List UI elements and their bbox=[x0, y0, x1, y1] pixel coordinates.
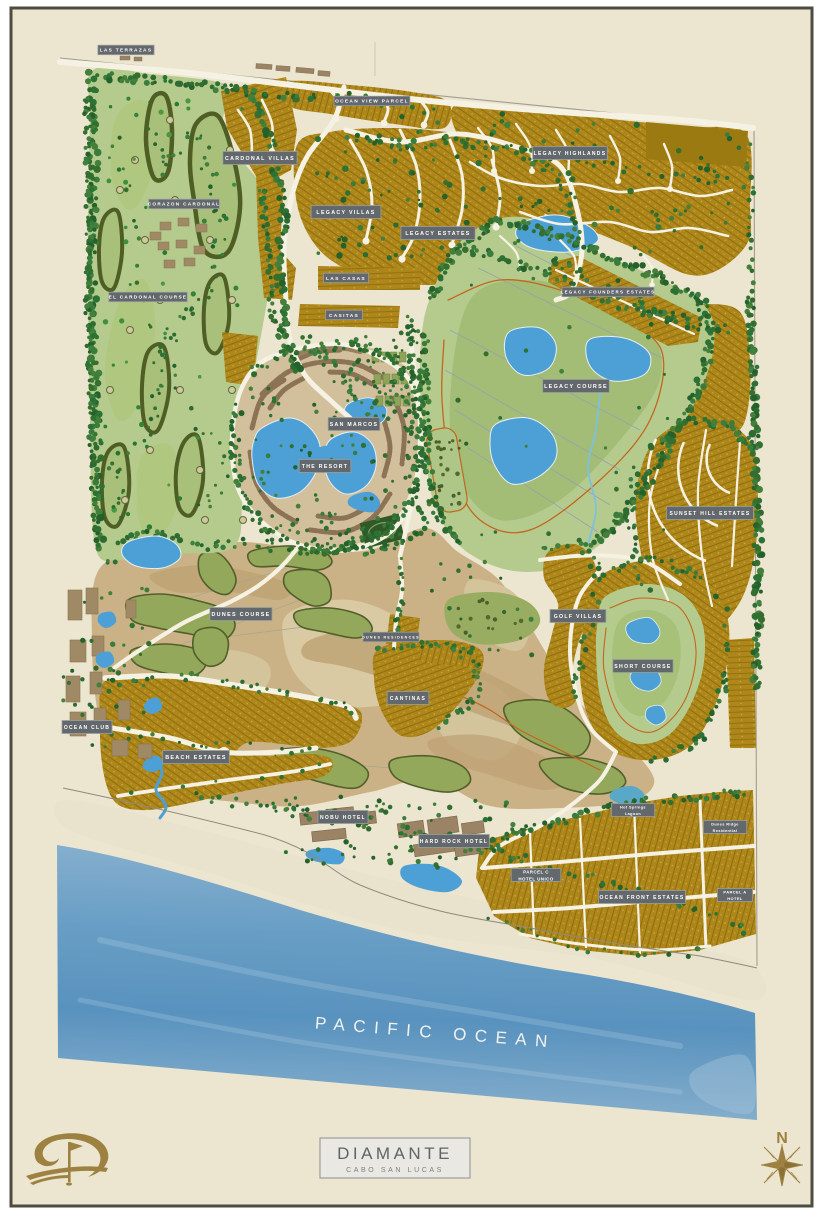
svg-text:LEGACY FOUNDERS ESTATES: LEGACY FOUNDERS ESTATES bbox=[561, 290, 656, 295]
svg-text:CANTINAS: CANTINAS bbox=[390, 696, 426, 702]
svg-text:DUNES RESIDENCES: DUNES RESIDENCES bbox=[362, 635, 420, 639]
svg-text:Dunes Ridge: Dunes Ridge bbox=[711, 823, 739, 827]
svg-text:SHORT COURSE: SHORT COURSE bbox=[614, 664, 671, 670]
svg-text:DUNES COURSE: DUNES COURSE bbox=[211, 612, 270, 618]
svg-text:OCEAN VIEW PARCEL: OCEAN VIEW PARCEL bbox=[335, 99, 409, 105]
svg-text:HOTEL: HOTEL bbox=[727, 896, 743, 901]
svg-text:PARCEL A: PARCEL A bbox=[723, 890, 746, 895]
svg-text:NOBU HOTEL: NOBU HOTEL bbox=[320, 815, 366, 821]
svg-text:SUNSET HILL ESTATES: SUNSET HILL ESTATES bbox=[669, 511, 750, 517]
svg-text:Hot Springs: Hot Springs bbox=[620, 806, 646, 810]
svg-text:PARCEL C: PARCEL C bbox=[523, 870, 549, 875]
svg-text:LEGACY VILLAS: LEGACY VILLAS bbox=[316, 210, 375, 216]
svg-text:SAN MARCOS: SAN MARCOS bbox=[330, 422, 378, 428]
svg-text:LEGACY HIGHLANDS: LEGACY HIGHLANDS bbox=[534, 151, 607, 157]
svg-text:CARDONAL VILLAS: CARDONAL VILLAS bbox=[225, 156, 295, 162]
svg-text:Residential: Residential bbox=[713, 829, 738, 833]
svg-text:EL CARDONAL COURSE: EL CARDONAL COURSE bbox=[109, 295, 188, 300]
svg-text:HARD ROCK HOTEL: HARD ROCK HOTEL bbox=[420, 839, 488, 845]
svg-text:Lagoon: Lagoon bbox=[625, 812, 641, 816]
svg-text:LAS TERRAZAS: LAS TERRAZAS bbox=[100, 48, 153, 54]
svg-text:CABO SAN LUCAS: CABO SAN LUCAS bbox=[346, 1167, 444, 1174]
svg-text:DIAMANTE: DIAMANTE bbox=[337, 1144, 453, 1163]
svg-text:OCEAN FRONT ESTATES: OCEAN FRONT ESTATES bbox=[599, 895, 684, 901]
svg-text:LEGACY ESTATES: LEGACY ESTATES bbox=[405, 231, 470, 237]
svg-text:HOTEL UNICO: HOTEL UNICO bbox=[518, 877, 553, 882]
svg-text:LEGACY COURSE: LEGACY COURSE bbox=[544, 384, 608, 390]
svg-text:BEACH ESTATES: BEACH ESTATES bbox=[165, 755, 227, 761]
svg-text:CASITAS: CASITAS bbox=[329, 313, 359, 319]
svg-text:GOLF VILLAS: GOLF VILLAS bbox=[554, 614, 603, 620]
svg-text:CORAZON CARDONAL: CORAZON CARDONAL bbox=[148, 202, 221, 207]
svg-text:OCEAN CLUB: OCEAN CLUB bbox=[64, 725, 110, 731]
svg-text:LAS CASAS: LAS CASAS bbox=[326, 276, 366, 282]
svg-text:THE RESORT: THE RESORT bbox=[302, 464, 348, 470]
